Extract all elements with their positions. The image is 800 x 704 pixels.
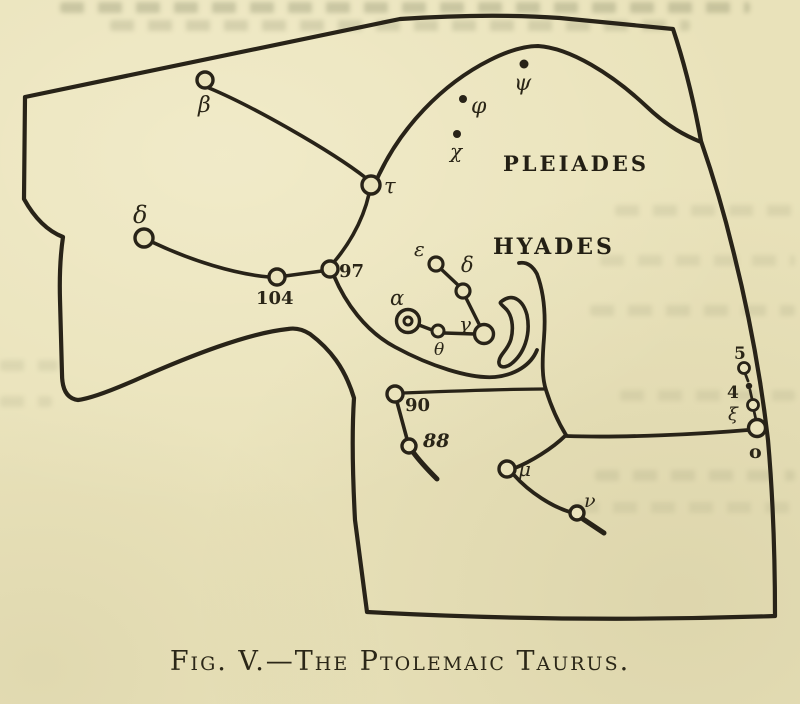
line-junction-omicron — [566, 430, 748, 437]
label-97: 97 — [339, 261, 364, 282]
label-xi: ξ — [728, 404, 739, 425]
star-chi-dot — [453, 130, 461, 138]
label-theta: θ — [434, 340, 444, 360]
star-97 — [322, 261, 338, 277]
star-omicron — [749, 420, 766, 437]
label-delta-left: δ — [133, 201, 147, 229]
star-90 — [387, 386, 403, 402]
label-4: 4 — [727, 383, 739, 403]
label-beta: β — [197, 93, 211, 118]
star-epsilon — [429, 257, 443, 271]
neck-line — [519, 263, 566, 435]
star-xi — [748, 400, 759, 411]
line-chain-b — [750, 390, 752, 399]
label-104: 104 — [256, 288, 294, 309]
star-104 — [269, 269, 285, 285]
hyades-label: HYADES — [493, 234, 615, 260]
star-phi-dot — [459, 95, 467, 103]
star-mu — [499, 461, 515, 477]
label-alpha: α — [390, 286, 404, 310]
tail-88 — [413, 452, 437, 479]
line-90-neck — [403, 389, 544, 393]
line-tau-97 — [334, 194, 369, 262]
label-90: 90 — [405, 395, 430, 416]
pleiades-label: PLEIADES — [503, 151, 649, 176]
cheek-crescent — [499, 298, 528, 367]
label-5: 5 — [734, 344, 746, 364]
star-88 — [402, 439, 416, 453]
label-88: 88 — [422, 430, 449, 452]
star-alpha-inner — [404, 317, 412, 325]
label-gamma: γ — [459, 312, 471, 336]
line-104-97 — [285, 271, 322, 276]
line-beta-tau — [209, 88, 366, 178]
nu-tail — [583, 519, 604, 533]
line-delta-104 — [152, 242, 269, 277]
label-psi: ψ — [514, 71, 532, 96]
label-phi: φ — [471, 94, 487, 119]
star-gamma — [475, 325, 494, 344]
star-delta-hyades — [456, 284, 470, 298]
scanned-book-page: { "figure": { "caption": "Fig. V.—The Pt… — [0, 0, 800, 704]
taurus-star-map: PLEIADES HYADES β τ δ 104 97 ε δ α θ γ ψ… — [0, 0, 800, 704]
label-tau: τ — [384, 174, 396, 198]
star-delta-left — [135, 229, 153, 247]
label-delta-hyades: δ — [461, 253, 474, 277]
label-epsilon: ε — [414, 237, 425, 261]
star-psi-dot — [520, 60, 529, 69]
line-epsilon-delta — [441, 269, 458, 285]
label-chi: χ — [448, 139, 464, 163]
star-beta — [197, 72, 213, 88]
label-omicron: o — [749, 441, 762, 463]
label-mu: μ — [518, 457, 531, 481]
label-nu: ν — [584, 490, 596, 512]
star-tau — [362, 176, 380, 194]
figure-caption: Fig. V.—The Ptolemaic Taurus. — [0, 646, 800, 677]
line-alpha-theta — [419, 325, 432, 330]
star-theta — [432, 325, 444, 337]
star-5 — [739, 363, 750, 374]
star-nu — [570, 506, 584, 520]
star-4-dot — [746, 383, 752, 389]
